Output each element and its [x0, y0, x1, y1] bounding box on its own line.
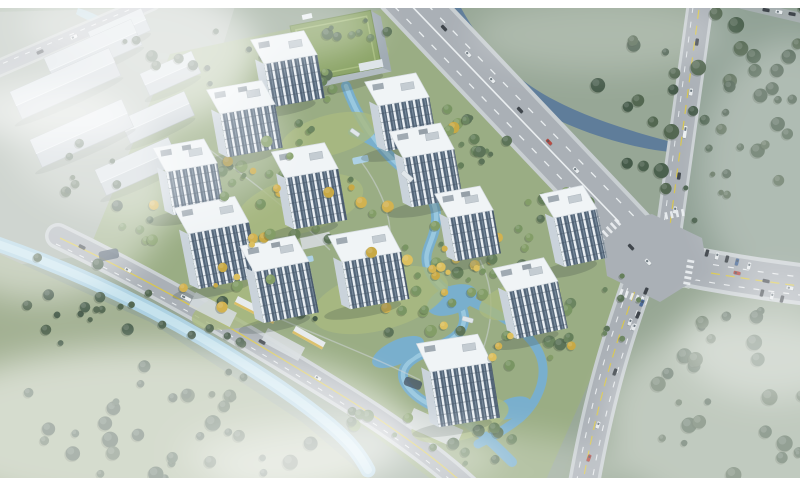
atmosphere-layer: [0, 0, 800, 485]
frame-top: [0, 0, 800, 8]
aerial-rendering: [0, 0, 800, 485]
rendering-canvas: [0, 0, 800, 485]
frame-bottom: [0, 478, 800, 485]
